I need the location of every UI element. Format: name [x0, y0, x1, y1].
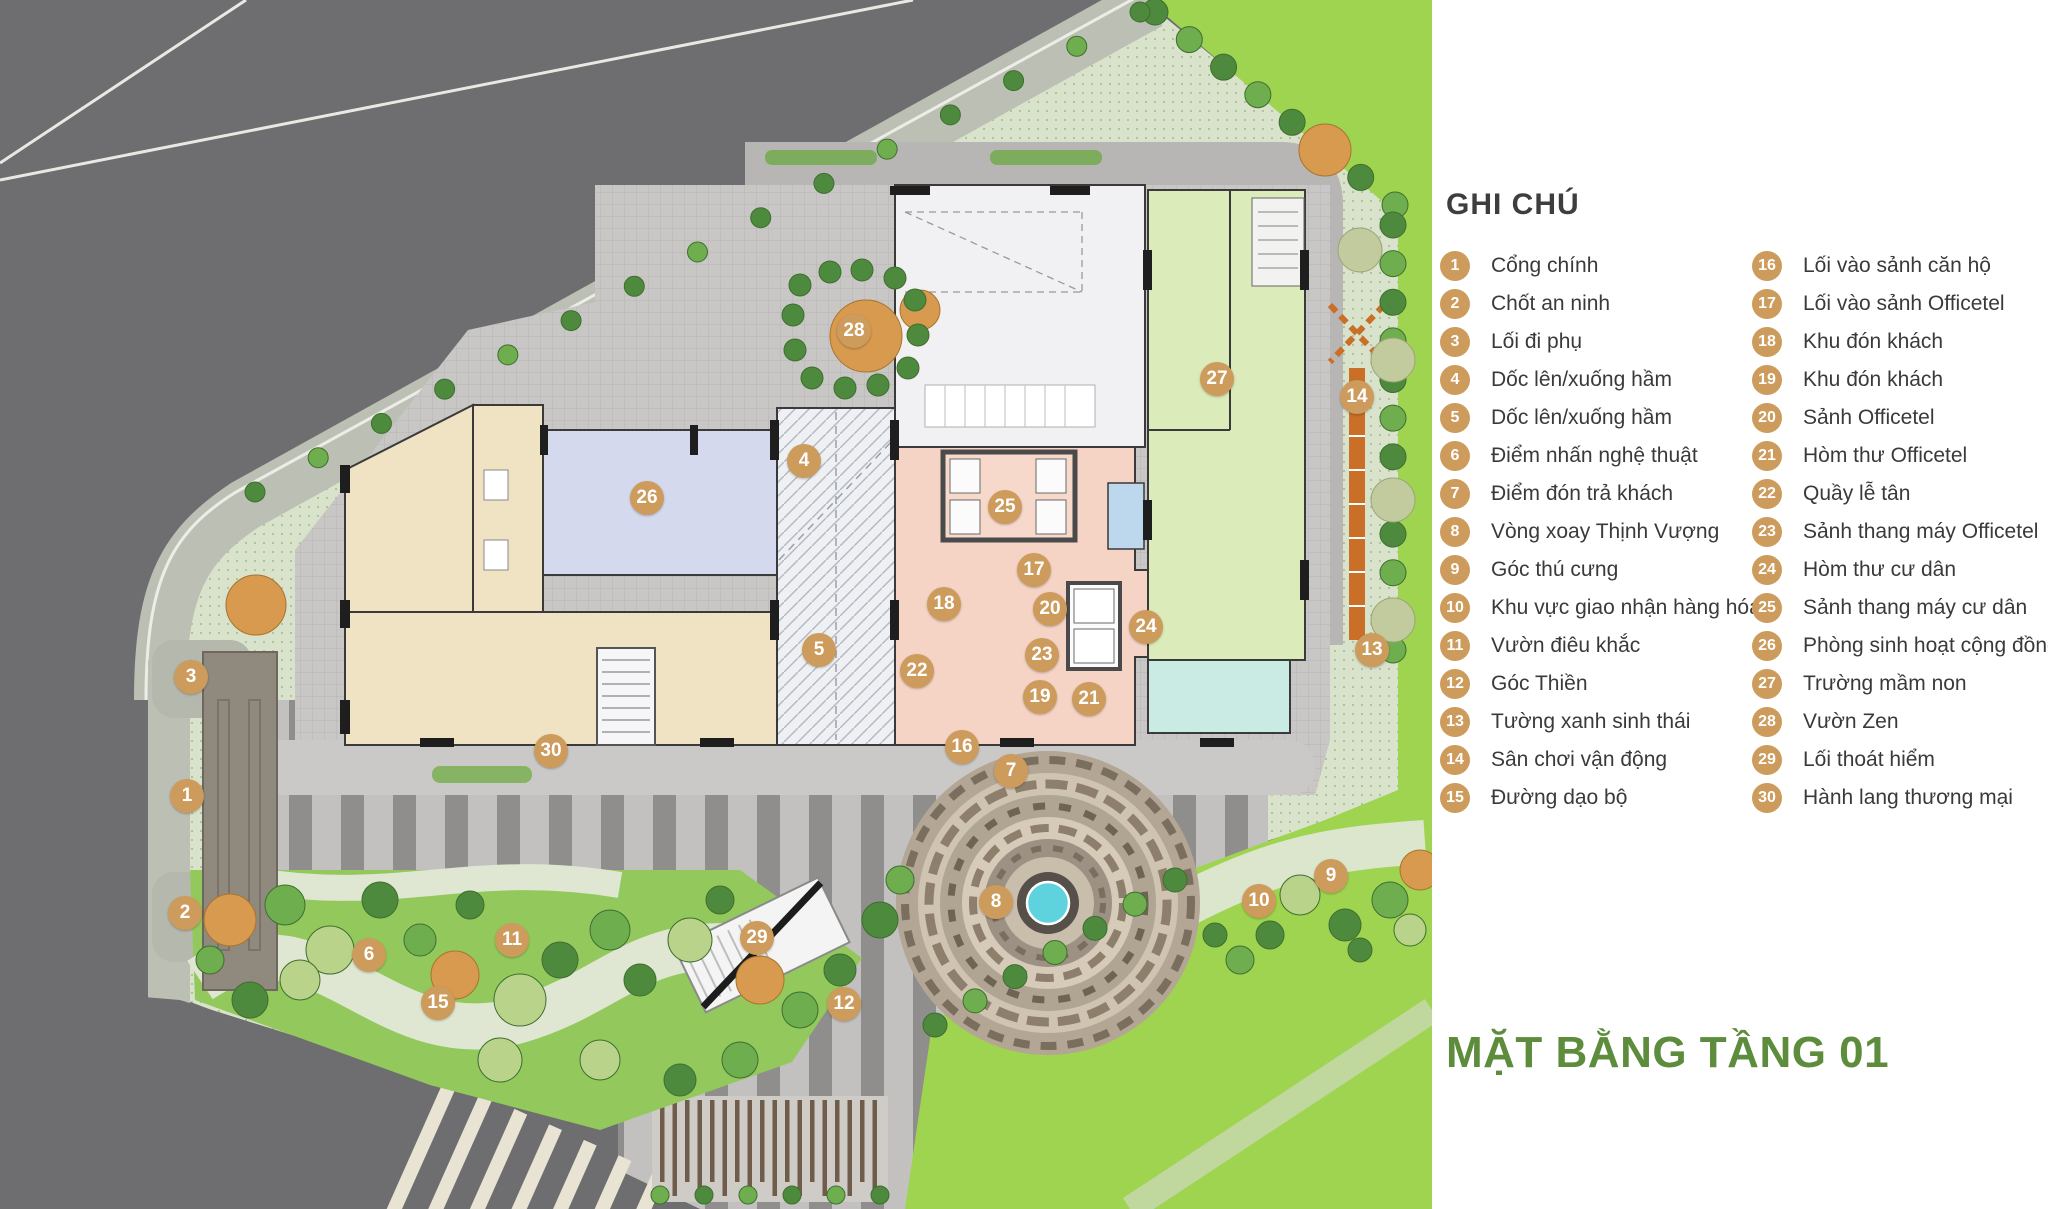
legend-label: Vườn điêu khắc: [1491, 634, 1640, 658]
legend-item-19: 19Khu đón khách: [1748, 361, 2048, 399]
legend-number-badge: 3: [1440, 327, 1470, 357]
legend-panel: GHI CHÚ 1Cổng chính2Chốt an ninh3Lối đi …: [1432, 0, 2048, 1209]
legend-number-badge: 6: [1440, 441, 1470, 471]
plan-marker-26: 26: [630, 481, 664, 515]
legend-item-21: 21Hòm thư Officetel: [1748, 437, 2048, 475]
legend-number-badge: 29: [1752, 745, 1782, 775]
legend-number-badge: 17: [1752, 289, 1782, 319]
legend-item-18: 18Khu đón khách: [1748, 323, 2048, 361]
legend-item-5: 5Dốc lên/xuống hầm: [1436, 399, 1748, 437]
legend-item-9: 9Góc thú cưng: [1436, 551, 1748, 589]
plan-marker-6: 6: [352, 938, 386, 972]
legend-label: Lối đi phụ: [1491, 330, 1582, 354]
legend-number-badge: 20: [1752, 403, 1782, 433]
legend-item-30: 30Hành lang thương mại: [1748, 779, 2048, 817]
plan-marker-23: 23: [1025, 638, 1059, 672]
plan-marker-13: 13: [1355, 633, 1389, 667]
plan-marker-8: 8: [979, 885, 1013, 919]
legend-label: Khu vực giao nhận hàng hóa: [1491, 596, 1761, 620]
plan-marker-27: 27: [1200, 362, 1234, 396]
legend-number-badge: 14: [1440, 745, 1470, 775]
legend-item-15: 15Đường dạo bộ: [1436, 779, 1748, 817]
legend-item-7: 7Điểm đón trả khách: [1436, 475, 1748, 513]
legend-label: Lối vào sảnh Officetel: [1803, 292, 2005, 316]
legend-label: Hòm thư cư dân: [1803, 558, 1956, 582]
legend-item-24: 24Hòm thư cư dân: [1748, 551, 2048, 589]
legend-label: Khu đón khách: [1803, 368, 1943, 392]
plan-marker-4: 4: [787, 444, 821, 478]
legend-label: Trường mầm non: [1803, 672, 1967, 696]
legend-columns: 1Cổng chính2Chốt an ninh3Lối đi phụ4Dốc …: [1436, 247, 2048, 817]
legend-number-badge: 28: [1752, 707, 1782, 737]
legend-item-13: 13Tường xanh sinh thái: [1436, 703, 1748, 741]
legend-number-badge: 22: [1752, 479, 1782, 509]
legend-heading: GHI CHÚ: [1446, 188, 1580, 222]
legend-label: Điểm nhấn nghệ thuật: [1491, 444, 1698, 468]
legend-item-20: 20Sảnh Officetel: [1748, 399, 2048, 437]
legend-label: Sảnh thang máy Officetel: [1803, 520, 2038, 544]
legend-label: Sảnh thang máy cư dân: [1803, 596, 2027, 620]
plan-marker-7: 7: [994, 754, 1028, 788]
legend-item-23: 23Sảnh thang máy Officetel: [1748, 513, 2048, 551]
legend-number-badge: 26: [1752, 631, 1782, 661]
legend-item-10: 10Khu vực giao nhận hàng hóa: [1436, 589, 1748, 627]
legend-item-8: 8Vòng xoay Thịnh Vượng: [1436, 513, 1748, 551]
legend-number-badge: 8: [1440, 517, 1470, 547]
legend-number-badge: 10: [1440, 593, 1470, 623]
legend-number-badge: 21: [1752, 441, 1782, 471]
legend-number-badge: 11: [1440, 631, 1470, 661]
plan-marker-20: 20: [1033, 592, 1067, 626]
plan-marker-17: 17: [1017, 553, 1051, 587]
plan-marker-19: 19: [1023, 680, 1057, 714]
legend-item-1: 1Cổng chính: [1436, 247, 1748, 285]
legend-label: Vòng xoay Thịnh Vượng: [1491, 520, 1719, 544]
legend-number-badge: 13: [1440, 707, 1470, 737]
legend-item-14: 14Sân chơi vận động: [1436, 741, 1748, 779]
plan-marker-16: 16: [945, 730, 979, 764]
plan-marker-9: 9: [1314, 859, 1348, 893]
legend-label: Sảnh Officetel: [1803, 406, 1935, 430]
legend-item-17: 17Lối vào sảnh Officetel: [1748, 285, 2048, 323]
legend-label: Dốc lên/xuống hầm: [1491, 368, 1672, 392]
legend-item-27: 27Trường mầm non: [1748, 665, 2048, 703]
legend-label: Sân chơi vận động: [1491, 748, 1667, 772]
legend-label: Khu đón khách: [1803, 330, 1943, 354]
legend-item-12: 12Góc Thiền: [1436, 665, 1748, 703]
legend-number-badge: 4: [1440, 365, 1470, 395]
plan-marker-11: 11: [495, 923, 529, 957]
legend-item-6: 6Điểm nhấn nghệ thuật: [1436, 437, 1748, 475]
legend-label: Quầy lễ tân: [1803, 482, 1910, 506]
legend-number-badge: 18: [1752, 327, 1782, 357]
legend-number-badge: 5: [1440, 403, 1470, 433]
legend-number-badge: 30: [1752, 783, 1782, 813]
plan-marker-29: 29: [740, 921, 774, 955]
legend-number-badge: 9: [1440, 555, 1470, 585]
legend-label: Cổng chính: [1491, 254, 1598, 278]
legend-number-badge: 27: [1752, 669, 1782, 699]
legend-item-28: 28Vườn Zen: [1748, 703, 2048, 741]
plan-marker-1: 1: [170, 779, 204, 813]
legend-label: Chốt an ninh: [1491, 292, 1610, 316]
site-plan: 1234567891011121314151617181920212223242…: [0, 0, 1432, 1209]
plan-marker-12: 12: [827, 987, 861, 1021]
plan-marker-28: 28: [837, 314, 871, 348]
legend-item-25: 25Sảnh thang máy cư dân: [1748, 589, 2048, 627]
plan-marker-18: 18: [927, 587, 961, 621]
plan-marker-21: 21: [1072, 682, 1106, 716]
legend-item-4: 4Dốc lên/xuống hầm: [1436, 361, 1748, 399]
plan-marker-10: 10: [1242, 884, 1276, 918]
legend-label: Lối thoát hiểm: [1803, 748, 1935, 772]
plan-marker-22: 22: [900, 654, 934, 688]
legend-label: Lối vào sảnh căn hộ: [1803, 254, 1991, 278]
legend-item-11: 11Vườn điêu khắc: [1436, 627, 1748, 665]
plan-marker-25: 25: [988, 490, 1022, 524]
plan-marker-overlay: 1234567891011121314151617181920212223242…: [0, 0, 1432, 1209]
plan-marker-2: 2: [168, 896, 202, 930]
legend-item-2: 2Chốt an ninh: [1436, 285, 1748, 323]
legend-number-badge: 23: [1752, 517, 1782, 547]
legend-label: Hòm thư Officetel: [1803, 444, 1967, 468]
legend-number-badge: 19: [1752, 365, 1782, 395]
legend-number-badge: 16: [1752, 251, 1782, 281]
legend-label: Đường dạo bộ: [1491, 786, 1627, 810]
plan-marker-15: 15: [421, 986, 455, 1020]
legend-item-3: 3Lối đi phụ: [1436, 323, 1748, 361]
legend-label: Vườn Zen: [1803, 710, 1899, 734]
legend-number-badge: 24: [1752, 555, 1782, 585]
legend-number-badge: 2: [1440, 289, 1470, 319]
legend-item-26: 26Phòng sinh hoạt cộng đồng: [1748, 627, 2048, 665]
screenshot-root: 1234567891011121314151617181920212223242…: [0, 0, 2048, 1209]
legend-label: Tường xanh sinh thái: [1491, 710, 1690, 734]
plan-marker-30: 30: [534, 734, 568, 768]
legend-column-1: 16Lối vào sảnh căn hộ17Lối vào sảnh Offi…: [1748, 247, 2048, 817]
legend-item-16: 16Lối vào sảnh căn hộ: [1748, 247, 2048, 285]
plan-marker-5: 5: [802, 633, 836, 667]
legend-label: Góc thú cưng: [1491, 558, 1618, 582]
legend-label: Hành lang thương mại: [1803, 786, 2013, 810]
plan-marker-24: 24: [1129, 610, 1163, 644]
legend-number-badge: 15: [1440, 783, 1470, 813]
plan-title: MẶT BẰNG TẦNG 01: [1446, 1028, 1889, 1078]
legend-number-badge: 12: [1440, 669, 1470, 699]
legend-item-29: 29Lối thoát hiểm: [1748, 741, 2048, 779]
legend-column-0: 1Cổng chính2Chốt an ninh3Lối đi phụ4Dốc …: [1436, 247, 1748, 817]
plan-marker-14: 14: [1340, 380, 1374, 414]
legend-item-22: 22Quầy lễ tân: [1748, 475, 2048, 513]
legend-label: Điểm đón trả khách: [1491, 482, 1673, 506]
legend-number-badge: 25: [1752, 593, 1782, 623]
legend-label: Góc Thiền: [1491, 672, 1588, 696]
legend-label: Phòng sinh hoạt cộng đồng: [1803, 634, 2048, 658]
legend-label: Dốc lên/xuống hầm: [1491, 406, 1672, 430]
plan-marker-3: 3: [174, 660, 208, 694]
legend-number-badge: 1: [1440, 251, 1470, 281]
legend-number-badge: 7: [1440, 479, 1470, 509]
